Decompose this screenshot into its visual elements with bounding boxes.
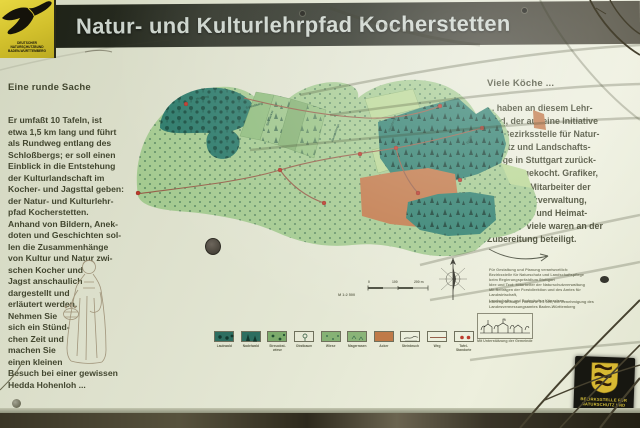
scale-tick-label: 200 m	[414, 280, 424, 284]
legend-swatch-weg	[427, 331, 447, 342]
legend-item: Magerrasen	[344, 331, 371, 353]
screw-icon	[300, 11, 305, 16]
legend-swatch-streuobstwiese	[267, 331, 287, 342]
beetle-blob	[600, 276, 609, 283]
credits-block: Für Gestaltung und Planung verantwortlic…	[489, 268, 609, 304]
legend-swatch-steinbruch	[400, 331, 420, 342]
sketch-caption: Mit Unterstützung der Gemeinde	[477, 339, 547, 343]
legend-item: Steinbruch	[397, 331, 424, 353]
credits-block: Kartengrundlage: Flurkarte 1:2 500, mit …	[489, 300, 609, 310]
legend-item: Streuobst- wiese	[264, 331, 291, 353]
legend-swatch-laubwald	[214, 331, 234, 342]
scale-tick-label: 100	[392, 280, 398, 284]
legend-item: Acker	[371, 331, 398, 353]
map-ratio: M 1:2 500	[338, 293, 355, 297]
legend-swatch-obstbaum	[294, 331, 314, 342]
title-bar: Natur- und Kulturlehrpfad Kocherstetten	[46, 1, 640, 48]
legend-swatch-acker	[374, 331, 394, 342]
legend-item: Nadelwald	[238, 331, 265, 353]
screw-icon	[522, 8, 527, 13]
photo-of-info-board: Natur- und Kulturlehrpfad Kocherstetten …	[0, 0, 640, 428]
legend-item: Tafel- Standorte	[450, 331, 477, 353]
legend-swatch-wiese	[321, 331, 341, 342]
naturschutzbund-logo: DEUTSCHER NATURSCHUTZBUND BADEN-WÜRTTEMB…	[0, 0, 56, 58]
trail-map: Schloßberg Heerweg Steinäcker Hasenkling…	[128, 74, 548, 270]
woman-sketch	[58, 256, 116, 364]
legend-item: Weg	[424, 331, 451, 353]
compass-icon	[436, 256, 470, 302]
legend-item: Laubwald	[211, 331, 238, 353]
legend-swatch-nadelwald	[241, 331, 261, 342]
village-sketch	[477, 313, 533, 339]
ground-strip	[0, 413, 640, 428]
coat-of-arms-icon	[589, 360, 620, 395]
legend-item: Wiese	[317, 331, 344, 353]
snail-blob	[205, 238, 221, 255]
board-title: Natur- und Kulturlehrpfad Kocherstetten	[46, 10, 511, 39]
legend-item: Obstbaum	[291, 331, 318, 353]
legend-swatch-magerrasen	[347, 331, 367, 342]
eagle-icon	[0, 0, 56, 40]
scale-tick-label: 0	[368, 280, 370, 284]
scale-bar: 0 100 200 m	[366, 277, 430, 293]
bolt-icon	[12, 399, 21, 408]
legend-swatch-stationen	[454, 331, 474, 342]
left-heading: Eine runde Sache	[8, 82, 126, 93]
logo-text: DEUTSCHER NATURSCHUTZBUND BADEN-WÜRTTEMB…	[0, 41, 54, 53]
map-legend: Laubwald Nadelwald Streuobst- wiese Obst…	[211, 331, 477, 353]
